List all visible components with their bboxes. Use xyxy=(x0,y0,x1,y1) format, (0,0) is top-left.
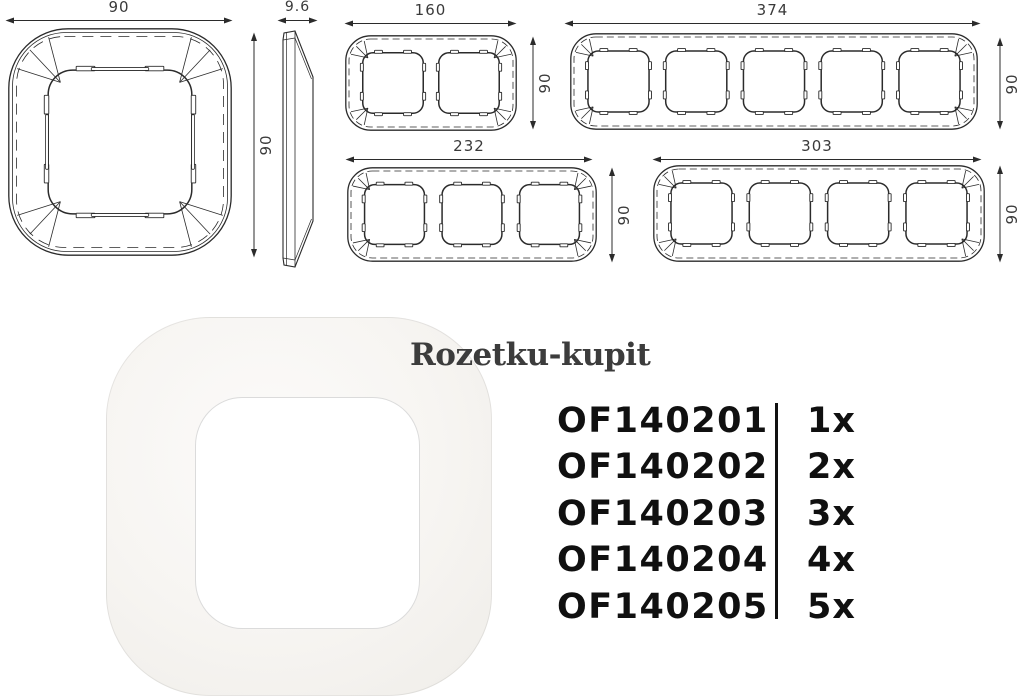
dim-height-4gang: 90 xyxy=(995,165,1019,263)
dim-width-2gang-label: 160 xyxy=(415,3,447,17)
dim-height-3gang-label: 90 xyxy=(617,204,631,225)
dim-thickness-label: 9.6 xyxy=(285,0,310,14)
dim-height-2gang-label: 90 xyxy=(538,72,552,93)
view-frame-4gang xyxy=(653,165,985,262)
product-qty: 1x xyxy=(807,404,856,439)
dim-height-2gang: 90 xyxy=(528,36,558,130)
dim-arrow xyxy=(564,19,981,28)
product-sheet: 90 9.6 160 374 232 303 90 90 90 90 90 xyxy=(0,0,1019,700)
dim-height-5gang: 90 xyxy=(995,37,1019,130)
product-qty: 5x xyxy=(807,590,856,625)
product-sku: OF140204 xyxy=(557,543,777,578)
dim-width-4gang-label: 303 xyxy=(801,139,833,153)
table-row: OF140202 2x xyxy=(557,445,867,492)
dim-arrow xyxy=(277,16,318,25)
dim-arrow xyxy=(5,16,233,25)
product-qty: 2x xyxy=(807,450,856,485)
dim-arrow xyxy=(652,155,982,164)
dim-arrow xyxy=(344,19,517,28)
view-frame-5gang xyxy=(570,33,978,130)
product-qty: 4x xyxy=(807,543,856,578)
view-frame-side-profile xyxy=(282,30,314,268)
product-sku: OF140205 xyxy=(557,590,777,625)
dim-height-1gang-label: 90 xyxy=(259,134,273,155)
dim-arrow xyxy=(345,155,593,164)
table-row: OF140201 1x xyxy=(557,398,867,445)
dim-width-1gang-label: 90 xyxy=(108,0,129,14)
frame-side-profile-drawing xyxy=(282,30,314,268)
dim-width-3gang: 232 xyxy=(345,139,593,164)
table-row: OF140205 5x xyxy=(557,584,867,631)
dim-thickness-side: 9.6 xyxy=(277,0,318,25)
frame-4gang-drawing xyxy=(653,165,985,262)
view-frame-3gang xyxy=(347,167,597,262)
table-row: OF140204 4x xyxy=(557,538,867,585)
product-sku: OF140202 xyxy=(557,450,777,485)
frame-5gang-drawing xyxy=(570,33,978,130)
frame-1gang-drawing xyxy=(8,28,232,256)
table-row: OF140203 3x xyxy=(557,491,867,538)
dim-width-5gang-label: 374 xyxy=(757,3,789,17)
dim-height-4gang-label: 90 xyxy=(1005,203,1019,224)
product-sku: OF140203 xyxy=(557,497,777,532)
frame-2gang-drawing xyxy=(345,35,517,131)
product-qty: 3x xyxy=(807,497,856,532)
frame-3gang-drawing xyxy=(347,167,597,262)
dim-width-1gang: 90 xyxy=(5,0,233,25)
view-frame-2gang xyxy=(345,35,517,131)
view-frame-1gang xyxy=(8,28,232,256)
dim-height-1gang: 90 xyxy=(249,32,279,258)
dim-width-3gang-label: 232 xyxy=(453,139,485,153)
dim-width-5gang: 374 xyxy=(564,3,981,28)
dim-height-5gang-label: 90 xyxy=(1005,73,1019,94)
dim-width-2gang: 160 xyxy=(344,3,517,28)
product-sku: OF140201 xyxy=(557,404,777,439)
photo-frame-opening xyxy=(195,397,420,629)
watermark-text: Rozetku-kupit xyxy=(410,336,650,374)
product-table: OF140201 1x OF140202 2x OF140203 3x OF14… xyxy=(557,398,867,631)
table-divider xyxy=(775,403,778,619)
dim-height-3gang: 90 xyxy=(607,167,637,263)
dim-width-4gang: 303 xyxy=(652,139,982,164)
